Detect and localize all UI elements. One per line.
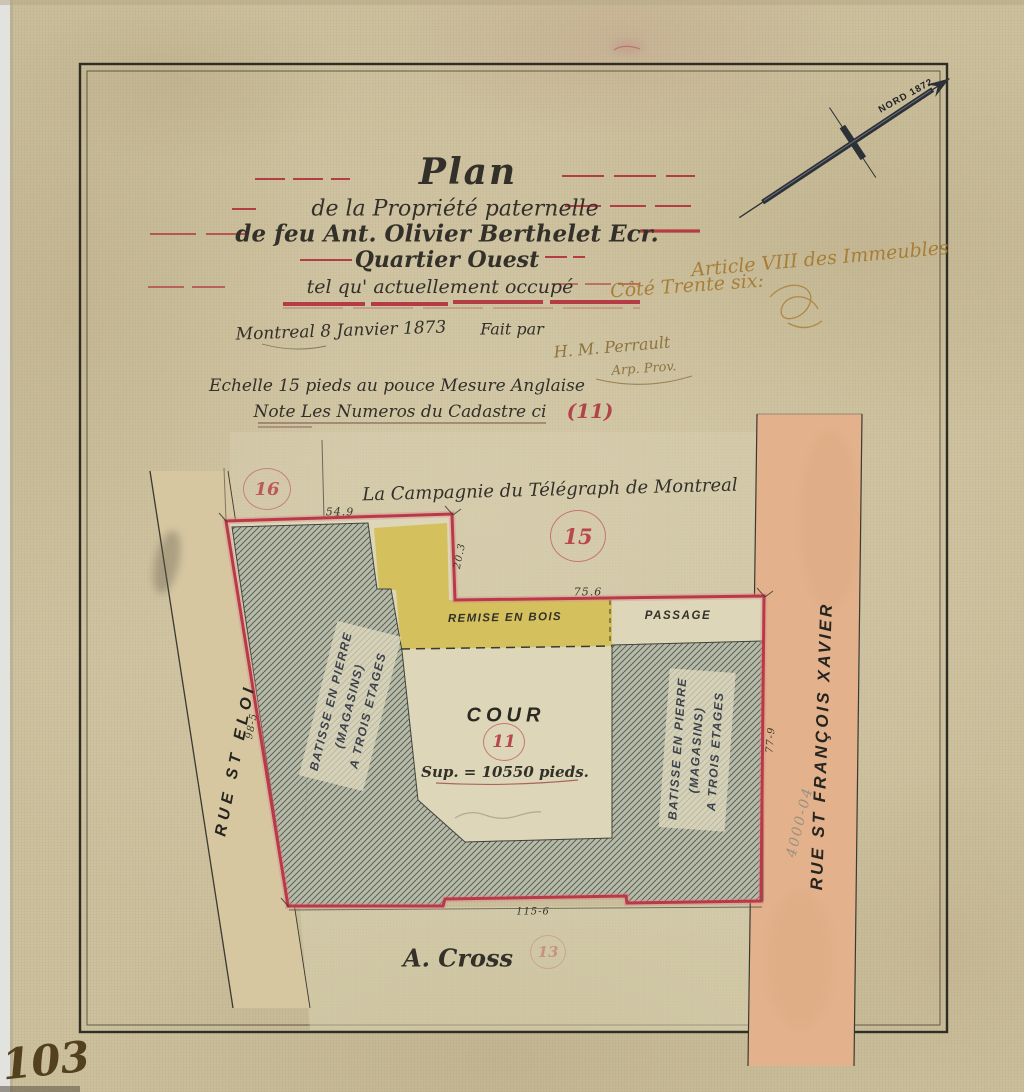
dimension-step: 20.3 — [452, 542, 468, 570]
north-lot-label: La Campagnie du Télégraph de Montreal — [362, 475, 738, 506]
surveyor-signature: H. M. Perrault — [553, 332, 671, 361]
lot-number-13: 13 — [530, 935, 566, 969]
lot-number-11: 11 — [483, 723, 525, 761]
date-line: Montreal 8 Janvier 1873 — [235, 317, 446, 344]
passage-label: PASSAGE — [645, 610, 712, 622]
lot-number-16: 16 — [243, 468, 291, 510]
cadastre-number: (11) — [567, 399, 614, 423]
scale-note: Echelle 15 pieds au pouce Mesure Anglais… — [209, 376, 585, 396]
surveyor-title: Arp. Prov. — [611, 359, 677, 378]
court-label: COUR — [467, 705, 546, 728]
title-line-2: de la Propriété paternelle — [311, 197, 598, 222]
dimension-upper: 75.6 — [574, 586, 603, 599]
fait-par-label: Fait par — [480, 320, 544, 339]
south-lot-label: A. Cross — [403, 944, 513, 973]
building-east-label: BATISSE EN PIERRE (MAGASINS) A TROIS ETA… — [659, 668, 735, 831]
title-line-4: Quartier Ouest — [355, 247, 539, 273]
title-line-5: tel qu' actuellement occupé — [307, 276, 574, 298]
street-west-label: RUE ST ELOI — [212, 682, 259, 838]
plan-title: Plan — [419, 151, 517, 193]
text-layer: Plan de la Propriété paternelle de feu A… — [0, 0, 1024, 1092]
north-arrow-label: NORD 1872 — [877, 76, 935, 115]
shed-label: REMISE EN BOIS — [448, 611, 562, 625]
court-area-label: Sup. = 10550 pieds. — [421, 763, 589, 781]
dimension-bottom: 115-6 — [516, 907, 550, 918]
cote-annotation: Côté Trente six: — [609, 270, 764, 303]
dimension-top: 54.9 — [326, 506, 355, 519]
title-line-3: de feu Ant. Olivier Berthelet Ecr. — [235, 221, 658, 248]
lot-number-15: 15 — [550, 510, 606, 562]
street-east-label: RUE ST FRANÇOIS XAVIER — [807, 601, 837, 890]
dimension-east: 77-9 — [764, 726, 777, 753]
sheet-number: 103 — [0, 1032, 92, 1090]
cadastre-note: Note Les Numeros du Cadastre ci — [254, 402, 547, 422]
building-west-label: BATISSE EN PIERRE (MAGASINS) A TROIS ETA… — [299, 621, 401, 791]
plan-sheet: { "page": { "numberLabel": "103" }, "nor… — [0, 0, 1024, 1092]
